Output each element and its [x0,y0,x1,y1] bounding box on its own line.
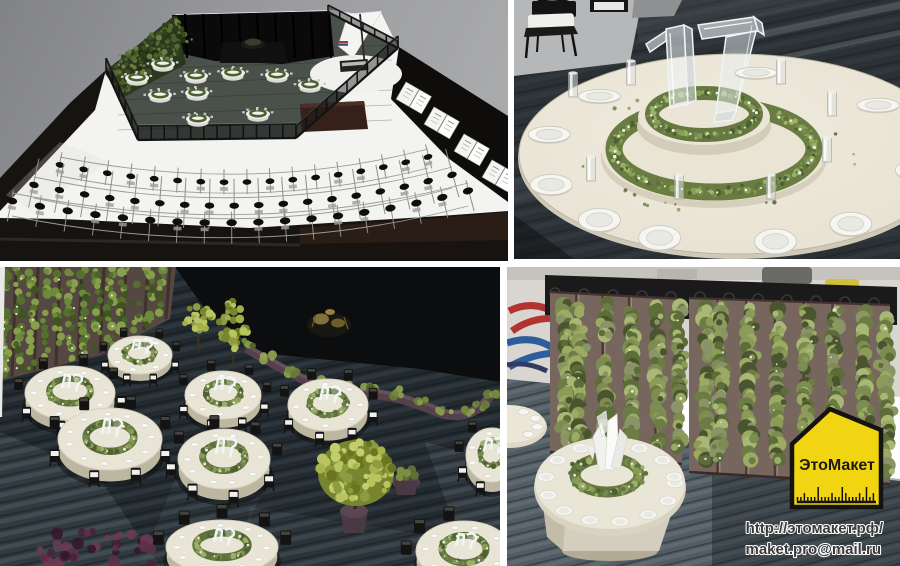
svg-text:ЭтоМакет: ЭтоМакет [799,457,875,474]
svg-text:maket.pro@mail.ru: maket.pro@mail.ru [746,541,882,558]
svg-text:http://этомакет.рф/: http://этомакет.рф/ [746,520,884,537]
